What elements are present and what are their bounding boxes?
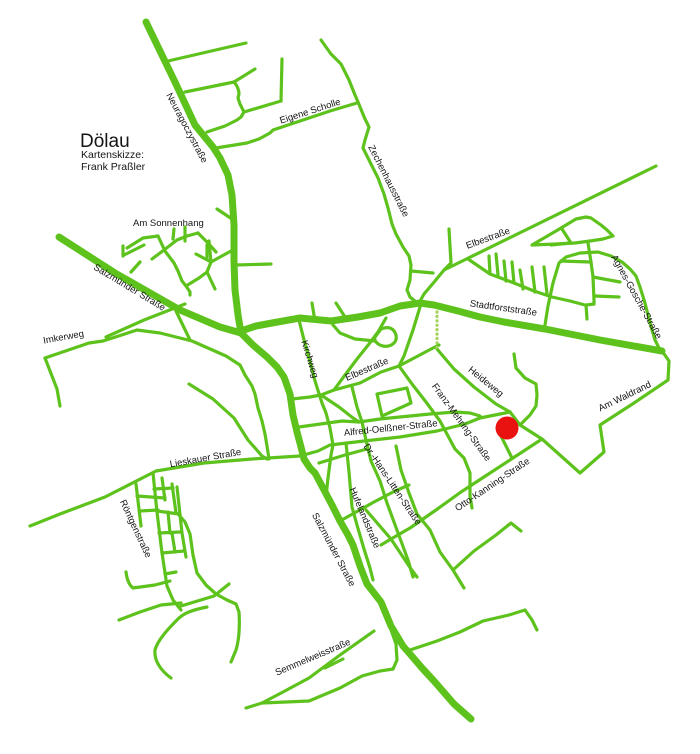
svg-text:Kartenskizze:: Kartenskizze: — [81, 149, 144, 161]
svg-text:Am Sonnenhang: Am Sonnenhang — [133, 218, 204, 229]
svg-text:Frank Praßler: Frank Praßler — [81, 161, 146, 173]
